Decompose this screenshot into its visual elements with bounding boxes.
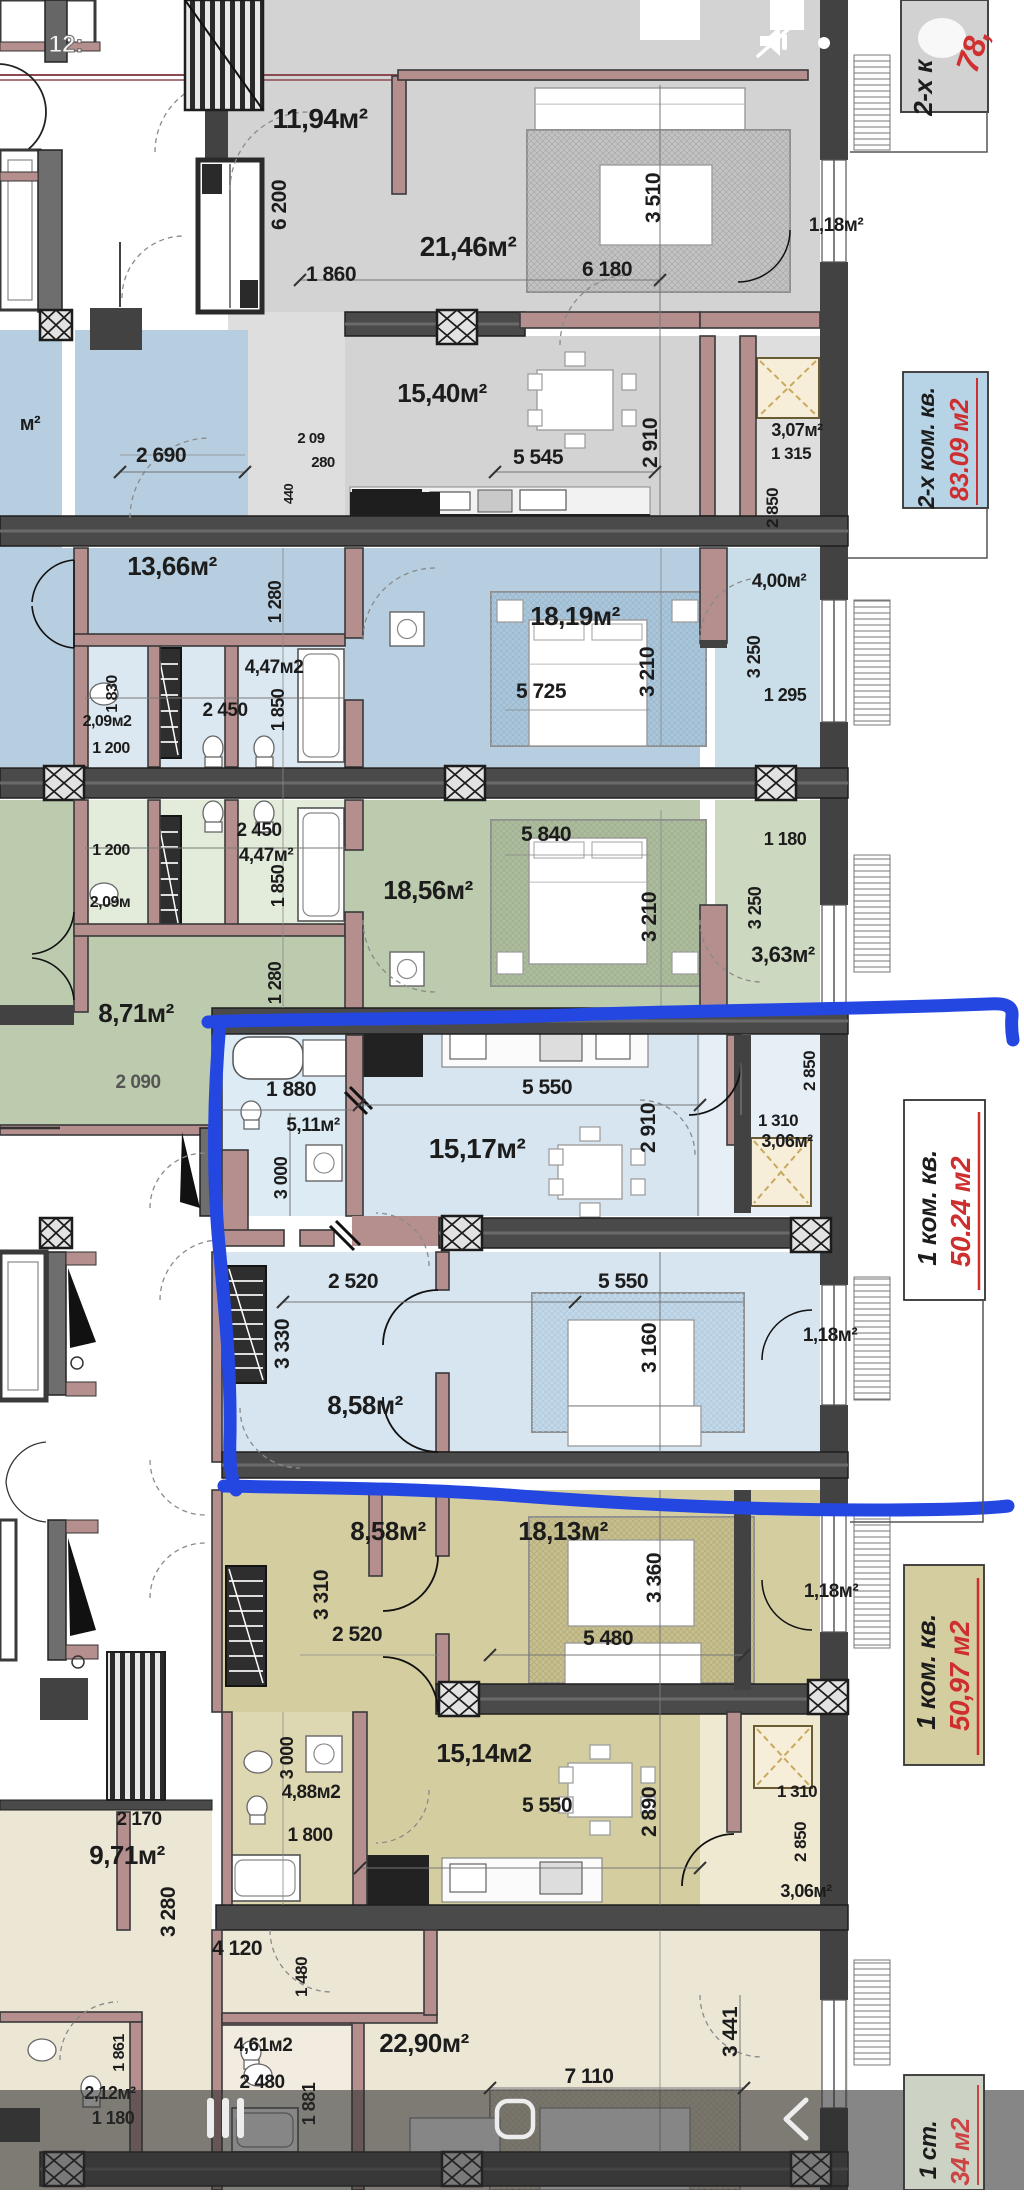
svg-text:1 800: 1 800 [287, 1825, 332, 1846]
svg-text:3 510: 3 510 [642, 173, 665, 223]
svg-text:2,09м: 2,09м [90, 894, 130, 911]
svg-text:4,47м2: 4,47м2 [245, 657, 304, 678]
svg-text:50,97 м2: 50,97 м2 [944, 1620, 975, 1731]
svg-text:1 830: 1 830 [104, 675, 121, 713]
svg-text:1 200: 1 200 [92, 842, 130, 859]
svg-text:1 280: 1 280 [265, 580, 285, 623]
svg-text:3 250: 3 250 [744, 635, 764, 678]
svg-text:15,40м²: 15,40м² [397, 378, 487, 408]
svg-text:2 850: 2 850 [791, 1822, 810, 1862]
svg-text:4,88м2: 4,88м2 [282, 1782, 341, 1803]
svg-text:2 170: 2 170 [116, 1809, 161, 1830]
svg-text:2 480: 2 480 [239, 2072, 284, 2093]
svg-text:2,09м2: 2,09м2 [83, 713, 132, 730]
svg-text:2 090: 2 090 [115, 1072, 160, 1093]
svg-text:3,06м²: 3,06м² [780, 1881, 832, 1901]
svg-text:2 450: 2 450 [202, 700, 247, 721]
svg-text:5 550: 5 550 [522, 1076, 572, 1099]
svg-text:8,71м²: 8,71м² [98, 998, 174, 1028]
svg-text:6 180: 6 180 [582, 258, 632, 281]
svg-text:2 690: 2 690 [136, 444, 186, 467]
svg-text:11,94м²: 11,94м² [272, 103, 367, 134]
svg-text:1,18м²: 1,18м² [803, 1325, 858, 1346]
svg-text:1 ст.: 1 ст. [915, 2121, 942, 2180]
svg-text:3 250: 3 250 [745, 886, 765, 929]
svg-text:3 280: 3 280 [157, 1887, 180, 1937]
svg-text:1 280: 1 280 [265, 961, 285, 1004]
svg-text:18,13м²: 18,13м² [518, 1516, 608, 1546]
svg-text:3 000: 3 000 [271, 1156, 291, 1199]
svg-text:5,11м²: 5,11м² [286, 1115, 339, 1136]
svg-text:3 441: 3 441 [719, 2006, 742, 2057]
svg-text:440: 440 [281, 484, 296, 504]
svg-text:1 310: 1 310 [758, 1111, 798, 1130]
svg-text:7 110: 7 110 [565, 2065, 614, 2088]
svg-text:3,06м²: 3,06м² [761, 1131, 813, 1151]
svg-text:1 850: 1 850 [268, 864, 288, 907]
svg-text:3 000: 3 000 [277, 1736, 297, 1779]
svg-text:280: 280 [311, 454, 335, 471]
svg-text:13,66м²: 13,66м² [127, 551, 217, 581]
svg-text:1 315: 1 315 [771, 444, 811, 463]
svg-text:2 850: 2 850 [800, 1051, 819, 1091]
svg-text:9,71м²: 9,71м² [89, 1840, 165, 1870]
svg-text:2-х к: 2-х к [908, 58, 938, 117]
svg-text:34 м2: 34 м2 [945, 2117, 975, 2185]
svg-text:2 450: 2 450 [236, 820, 281, 841]
svg-text:1 861: 1 861 [111, 2034, 128, 2072]
svg-text:12:: 12: [49, 31, 84, 58]
svg-text:3,07м²: 3,07м² [771, 420, 823, 440]
svg-text:5 550: 5 550 [522, 1794, 572, 1817]
svg-text:18,56м²: 18,56м² [383, 875, 473, 905]
svg-text:1 180: 1 180 [764, 829, 807, 849]
svg-text:50.24 м2: 50.24 м2 [945, 1156, 976, 1267]
svg-text:1 295: 1 295 [764, 685, 807, 705]
svg-text:4 120: 4 120 [212, 1937, 262, 1960]
svg-text:1 480: 1 480 [292, 1957, 311, 1997]
svg-text:3 160: 3 160 [638, 1323, 661, 1373]
svg-text:2 910: 2 910 [637, 1103, 660, 1153]
svg-text:1,18м²: 1,18м² [809, 215, 864, 236]
svg-text:2-х ком. кв.: 2-х ком. кв. [913, 387, 939, 509]
svg-text:8,58м²: 8,58м² [350, 1516, 426, 1546]
svg-text:1 ком. кв.: 1 ком. кв. [912, 1150, 942, 1266]
svg-text:2 09: 2 09 [297, 430, 324, 447]
svg-text:5 840: 5 840 [521, 823, 571, 846]
svg-text:м²: м² [20, 413, 41, 435]
svg-text:4,00м²: 4,00м² [752, 571, 807, 592]
svg-text:5 545: 5 545 [513, 446, 564, 469]
svg-text:1 860: 1 860 [306, 263, 356, 286]
svg-text:5 725: 5 725 [516, 680, 567, 703]
svg-text:1 ком. кв.: 1 ком. кв. [911, 1614, 941, 1730]
svg-text:15,17м²: 15,17м² [429, 1133, 526, 1164]
svg-text:4,61м2: 4,61м2 [234, 2035, 293, 2056]
svg-text:2 910: 2 910 [639, 418, 662, 468]
svg-text:1 310: 1 310 [777, 1782, 817, 1801]
svg-text:83.09 м2: 83.09 м2 [944, 398, 974, 501]
svg-text:8,58м²: 8,58м² [327, 1390, 403, 1420]
svg-text:1,18м²: 1,18м² [804, 1581, 859, 1602]
svg-text:3 360: 3 360 [643, 1553, 666, 1603]
svg-text:2 850: 2 850 [763, 488, 782, 528]
svg-text:6 200: 6 200 [268, 180, 291, 230]
svg-text:2 890: 2 890 [638, 1787, 661, 1837]
svg-text:2 520: 2 520 [332, 1623, 382, 1646]
svg-text:21,46м²: 21,46м² [420, 231, 517, 262]
svg-text:5 550: 5 550 [598, 1270, 648, 1293]
svg-text:3 210: 3 210 [636, 647, 659, 697]
svg-text:18,19м²: 18,19м² [530, 601, 620, 631]
svg-text:1 850: 1 850 [268, 688, 288, 731]
svg-text:3 310: 3 310 [310, 1570, 333, 1620]
svg-text:1 880: 1 880 [266, 1078, 316, 1101]
svg-text:3 210: 3 210 [638, 892, 661, 942]
svg-text:22,90м²: 22,90м² [379, 2028, 469, 2058]
svg-text:4,47м²: 4,47м² [239, 845, 294, 866]
svg-text:1 200: 1 200 [92, 740, 130, 757]
svg-text:15,14м2: 15,14м2 [436, 1738, 531, 1768]
svg-text:2 520: 2 520 [328, 1270, 378, 1293]
svg-text:3 330: 3 330 [271, 1319, 294, 1369]
svg-text:3,63м²: 3,63м² [751, 942, 815, 967]
svg-text:5 480: 5 480 [583, 1627, 633, 1650]
